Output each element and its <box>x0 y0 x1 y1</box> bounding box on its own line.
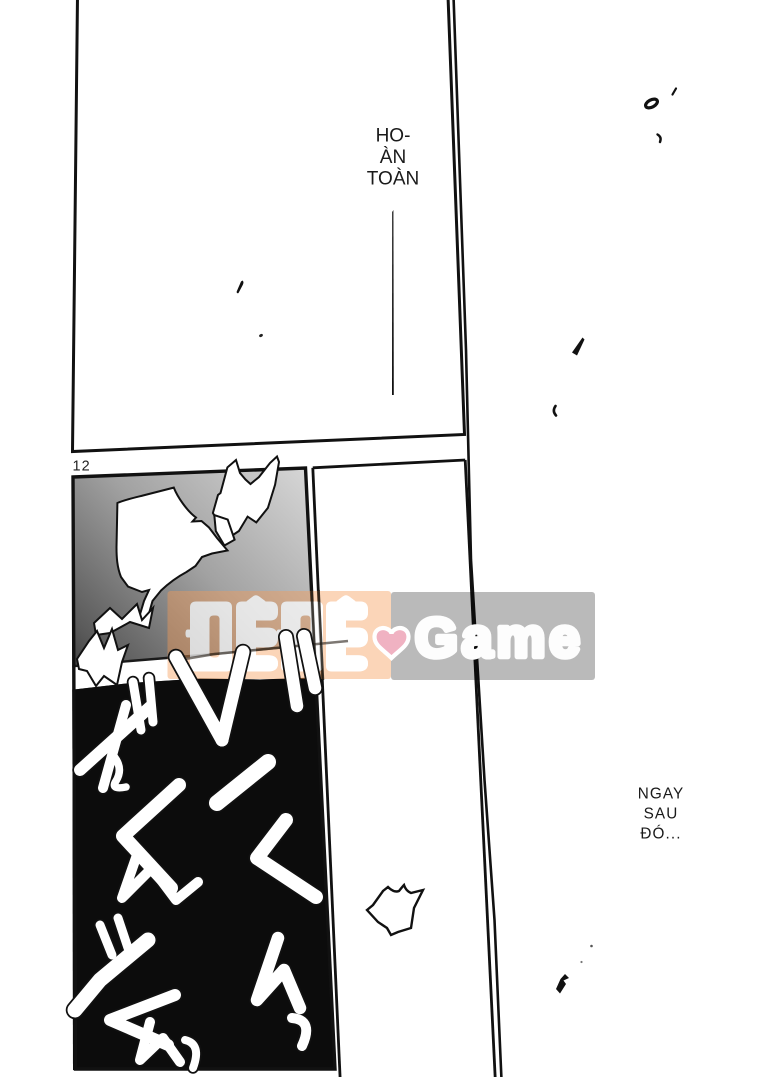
svg-text:ÀN: ÀN <box>380 147 406 168</box>
svg-text:HO-: HO- <box>376 126 411 147</box>
svg-text:NGAY: NGAY <box>638 786 685 803</box>
svg-text:TOÀN: TOÀN <box>367 169 419 190</box>
svg-text:Game: Game <box>415 607 584 669</box>
svg-text:12: 12 <box>73 459 91 475</box>
svg-text:ĐÓ...: ĐÓ... <box>640 826 681 843</box>
svg-text:SAU: SAU <box>644 806 679 823</box>
